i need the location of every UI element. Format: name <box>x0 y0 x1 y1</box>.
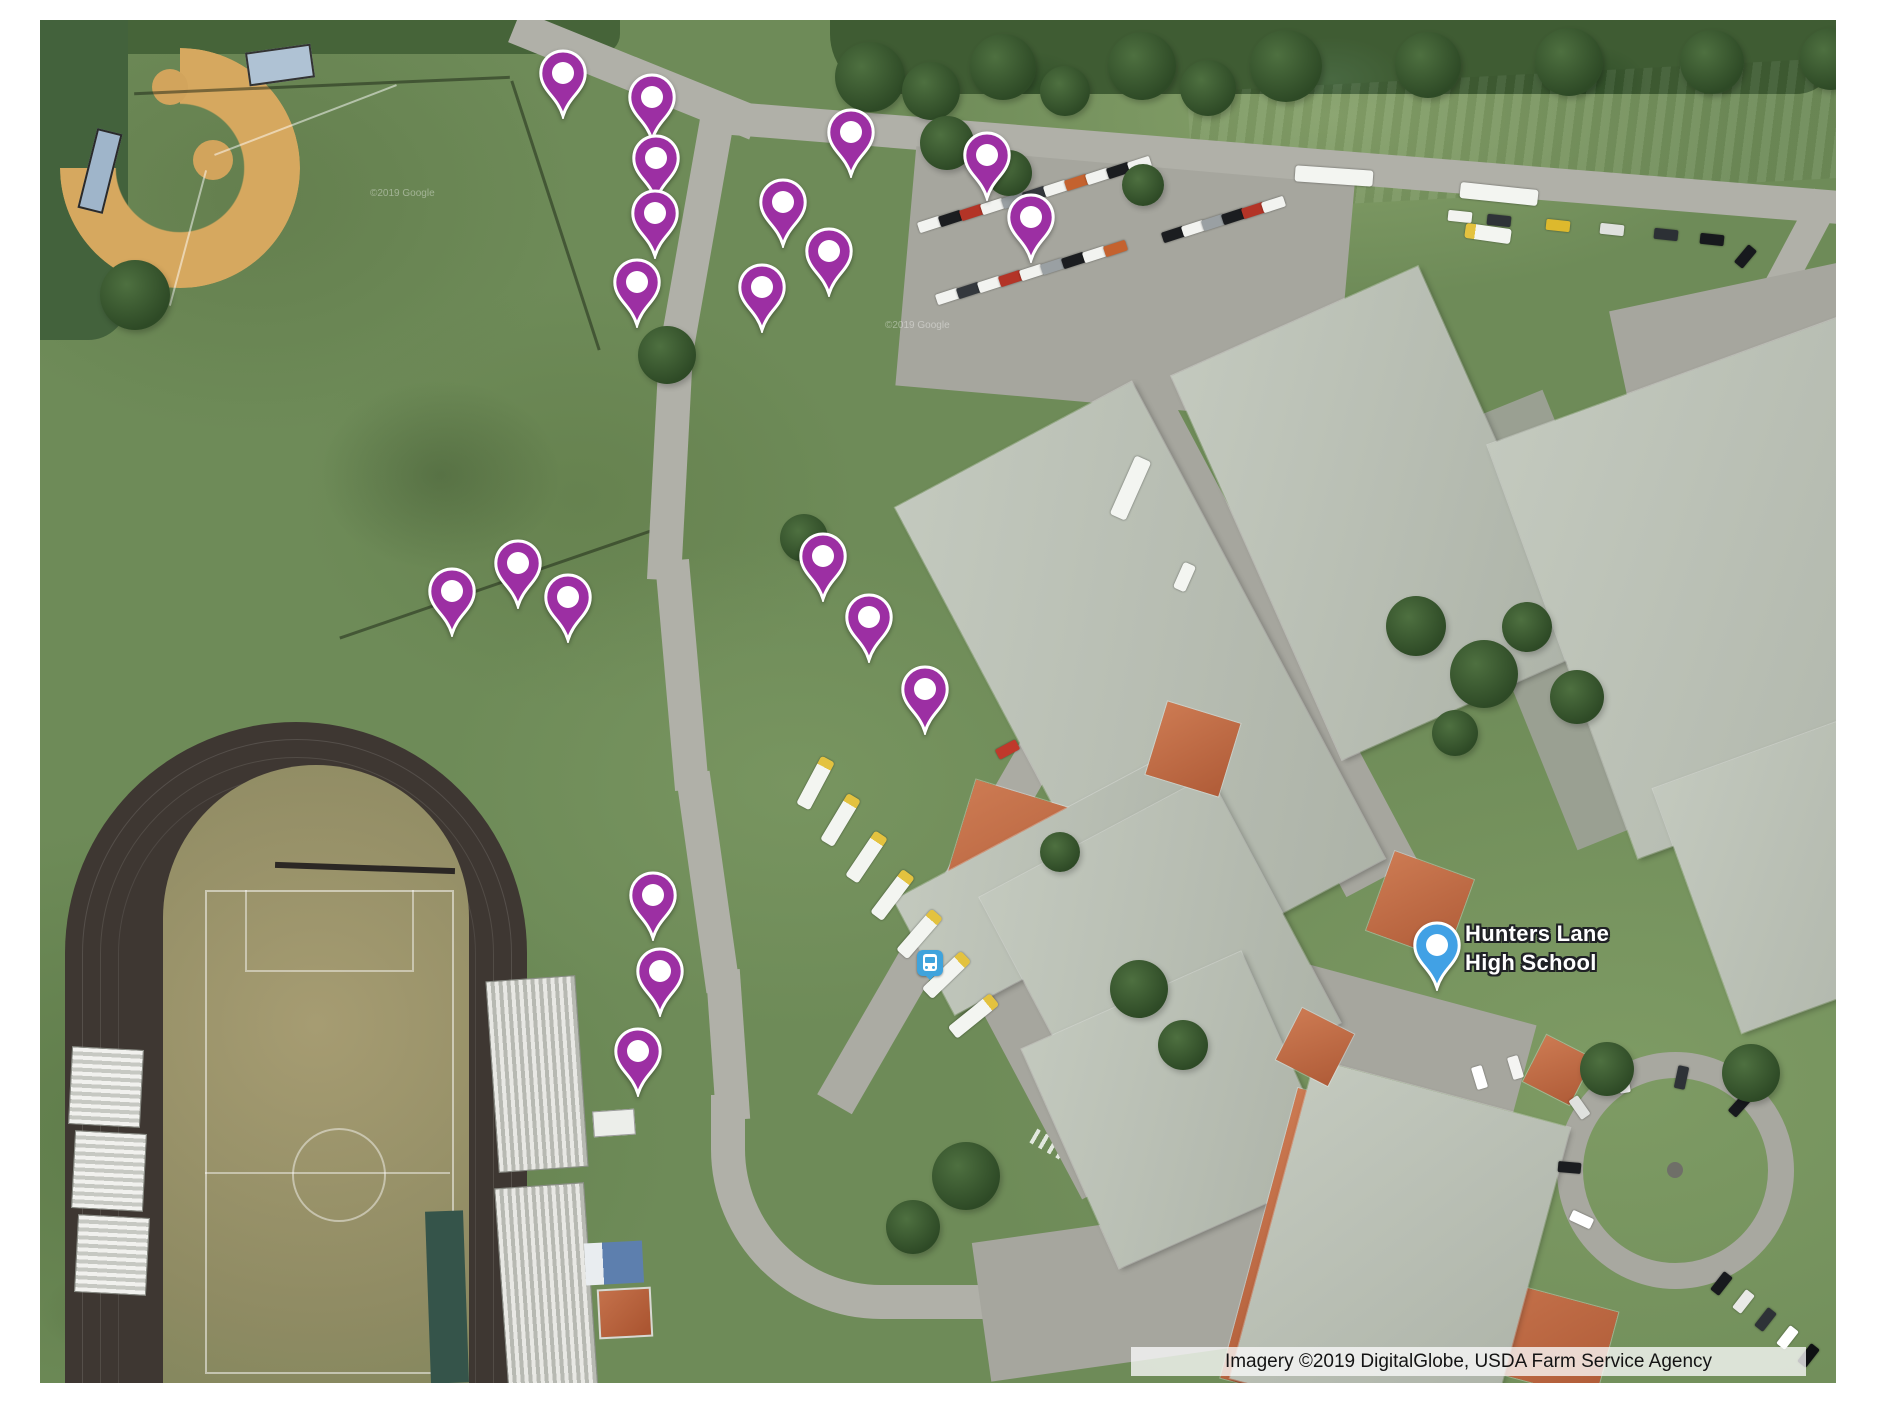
purple-map-marker[interactable] <box>612 258 662 328</box>
poi-label-line2: High School <box>1465 948 1609 977</box>
car <box>1734 244 1757 269</box>
car <box>1558 1161 1582 1174</box>
car <box>1545 219 1570 232</box>
road <box>655 559 709 791</box>
tree <box>1550 670 1604 724</box>
car <box>1447 210 1472 223</box>
school-bus <box>845 830 888 883</box>
bus-icon <box>923 954 937 971</box>
tree <box>1386 596 1446 656</box>
bleachers <box>485 975 588 1173</box>
tree <box>1122 164 1164 206</box>
screenshot-page: Hunters Lane High School Imagery ©2019 D… <box>0 0 1891 1413</box>
purple-map-marker[interactable] <box>758 178 808 248</box>
bus-stop-icon[interactable] <box>917 950 943 976</box>
map-attribution: Imagery ©2019 DigitalGlobe, USDA Farm Se… <box>1131 1347 1806 1376</box>
bleachers <box>74 1214 150 1296</box>
poi-label[interactable]: Hunters Lane High School <box>1465 919 1609 977</box>
road <box>647 349 693 580</box>
car <box>1699 233 1724 246</box>
purple-map-marker[interactable] <box>493 539 543 609</box>
blue-structure <box>584 1241 644 1286</box>
tree <box>1250 30 1322 102</box>
tree <box>1502 602 1552 652</box>
school-bus <box>820 793 861 847</box>
tree <box>1395 32 1461 98</box>
tree <box>100 260 170 330</box>
purple-map-marker[interactable] <box>804 227 854 297</box>
practice-mound <box>152 69 188 105</box>
monument <box>1667 1162 1683 1178</box>
fieldhouse-roof <box>592 1109 636 1138</box>
road <box>676 771 740 994</box>
tree <box>1110 960 1168 1018</box>
poi-label-line1: Hunters Lane <box>1465 919 1609 948</box>
purple-map-marker[interactable] <box>427 567 477 637</box>
purple-map-marker[interactable] <box>900 665 950 735</box>
tree <box>1580 1042 1634 1096</box>
tree <box>1040 66 1090 116</box>
purple-map-marker[interactable] <box>826 108 876 178</box>
center-circle <box>292 1128 386 1222</box>
purple-map-marker[interactable] <box>543 573 593 643</box>
tree <box>902 62 960 120</box>
tree <box>1158 1020 1208 1070</box>
car <box>1754 1307 1777 1332</box>
purple-map-marker[interactable] <box>798 532 848 602</box>
purple-map-marker[interactable] <box>635 947 685 1017</box>
purple-map-marker[interactable] <box>1006 193 1056 263</box>
purple-map-marker[interactable] <box>538 49 588 119</box>
imagery-watermark: ©2019 Google <box>370 188 435 199</box>
car <box>1599 223 1624 236</box>
tree <box>1108 32 1176 100</box>
purple-map-marker[interactable] <box>962 131 1012 201</box>
purple-map-marker[interactable] <box>627 73 677 143</box>
tree <box>1680 30 1744 94</box>
tree <box>1040 832 1080 872</box>
tree <box>1180 60 1236 116</box>
purple-map-marker[interactable] <box>628 871 678 941</box>
tree <box>932 1142 1000 1210</box>
poi-pin[interactable] <box>1412 921 1462 991</box>
car <box>1732 1289 1755 1314</box>
tree <box>1535 28 1603 96</box>
bleachers <box>71 1130 147 1212</box>
imagery-watermark: ©2019 Google <box>885 320 950 331</box>
purple-map-marker[interactable] <box>630 189 680 259</box>
equipment-shed <box>425 1210 469 1383</box>
pitchers-mound <box>193 140 233 180</box>
bleachers <box>494 1182 600 1383</box>
tree <box>970 34 1036 100</box>
purple-map-marker[interactable] <box>737 263 787 333</box>
dugout-roof <box>245 44 315 87</box>
car <box>1653 228 1678 241</box>
tree <box>638 326 696 384</box>
tree <box>1722 1044 1780 1102</box>
orange-roof-hut <box>597 1287 654 1340</box>
purple-map-marker[interactable] <box>844 593 894 663</box>
tree <box>835 42 905 112</box>
tree <box>1432 710 1478 756</box>
penalty-box <box>245 890 414 972</box>
satellite-map[interactable]: Hunters Lane High School Imagery ©2019 D… <box>40 20 1836 1383</box>
bleachers <box>68 1046 144 1128</box>
tree <box>1450 640 1518 708</box>
purple-map-marker[interactable] <box>613 1027 663 1097</box>
car <box>1486 214 1511 227</box>
tree <box>886 1200 940 1254</box>
school-bus <box>796 756 835 811</box>
